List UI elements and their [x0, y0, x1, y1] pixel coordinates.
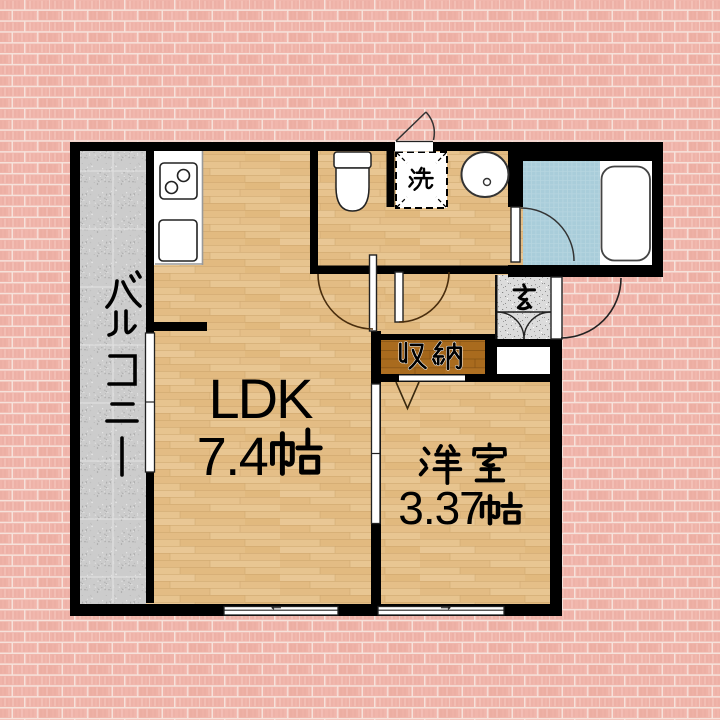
svg-text:3.37: 3.37: [398, 482, 484, 534]
svg-text:7.4: 7.4: [197, 427, 268, 487]
svg-text:LDK: LDK: [209, 367, 314, 430]
